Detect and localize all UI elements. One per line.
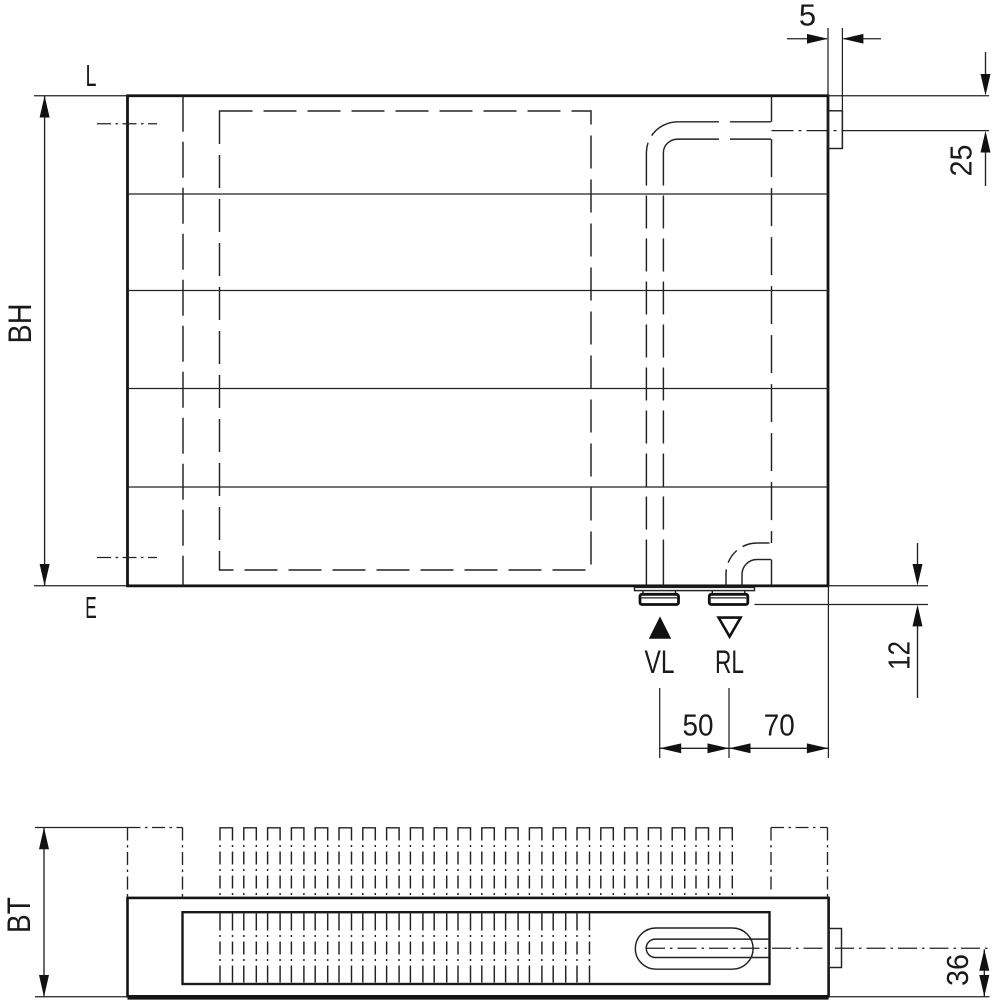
svg-text:E: E [85,590,97,625]
svg-text:50: 50 [683,708,714,743]
svg-text:12: 12 [882,641,917,670]
svg-text:L: L [86,58,97,93]
svg-text:VL: VL [645,644,675,680]
svg-text:5: 5 [799,0,816,33]
svg-text:70: 70 [764,708,795,743]
svg-text:BH: BH [2,304,38,344]
svg-text:RL: RL [715,644,744,680]
svg-text:BT: BT [1,897,37,933]
svg-text:36: 36 [940,954,975,986]
svg-text:25: 25 [944,145,979,177]
